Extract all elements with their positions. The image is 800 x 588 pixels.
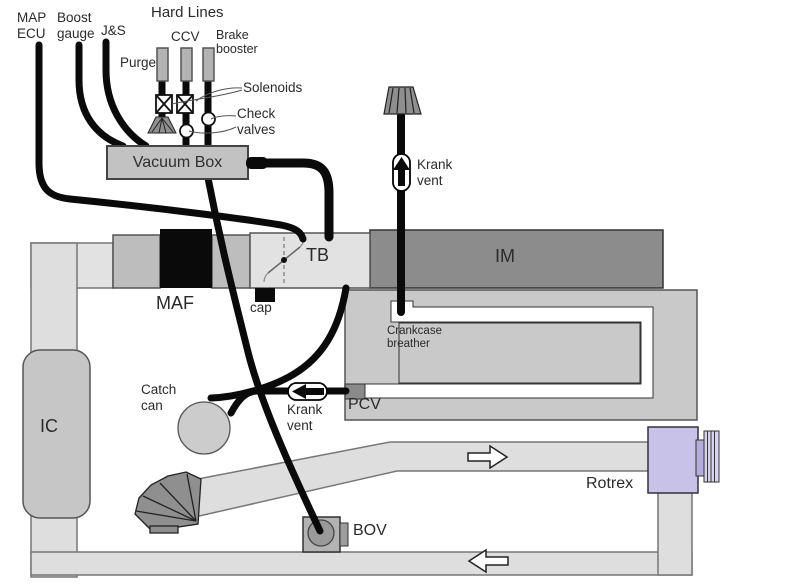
- label-map-ecu: MAP ECU: [17, 10, 46, 41]
- pipe-bottom: [31, 552, 692, 575]
- pipe-diagonal: [177, 442, 650, 519]
- rotrex-pulley: [704, 431, 719, 482]
- pipe-rotrex-down: [658, 482, 692, 575]
- krank-vent-top-valve-icon: [393, 154, 410, 191]
- label-krank-vent-top: Krank vent: [417, 157, 452, 188]
- ccv-solenoid-icon: [177, 95, 193, 113]
- label-krank-vent-bottom: Krank vent: [287, 402, 322, 433]
- label-ic: IC: [40, 416, 58, 437]
- label-tb: TB: [306, 245, 329, 266]
- bov-valve: [303, 517, 348, 552]
- diagram-canvas: [0, 0, 800, 588]
- rotrex-shaft: [696, 440, 704, 476]
- label-solenoids: Solenoids: [243, 80, 302, 96]
- intake-tube-left: [113, 235, 160, 288]
- cone-air-filter: [135, 472, 201, 533]
- label-im: IM: [495, 246, 515, 267]
- label-rotrex: Rotrex: [586, 475, 633, 493]
- krank-vent-bottom-valve-icon: [288, 383, 327, 400]
- hard-line-stubs: [157, 48, 214, 81]
- maf-sensor: [160, 229, 212, 288]
- bov-side-port: [340, 523, 348, 546]
- solenoid-valve-icons: [156, 95, 193, 113]
- label-cap: cap: [250, 300, 272, 316]
- label-boost-gauge: Boost gauge: [57, 10, 95, 41]
- label-crankcase-breather: Crankcase breather: [387, 325, 442, 351]
- hard-line-purge: [157, 48, 168, 81]
- check-valve-brake-icon: [202, 113, 215, 126]
- label-hard-lines: Hard Lines: [151, 4, 224, 21]
- label-brake-booster: Brake booster: [216, 28, 258, 57]
- krank-vent-top-filter-icon: [384, 87, 421, 114]
- hose-tb-to-catchcan: [211, 288, 346, 398]
- hard-line-brake-booster: [203, 48, 214, 81]
- label-bov: BOV: [353, 522, 387, 540]
- label-check-valves: Check valves: [237, 106, 275, 137]
- label-purge: Purge: [120, 55, 156, 71]
- label-ccv: CCV: [171, 29, 200, 45]
- purge-vent-icon: [148, 117, 176, 133]
- label-pcv: PCV: [348, 396, 381, 414]
- label-catch-can: Catch can: [141, 382, 176, 413]
- vacuum-routing-diagram: MAP ECU Boost gauge J&S Hard Lines Purge…: [0, 0, 800, 588]
- hard-line-ccv: [181, 48, 192, 81]
- purge-solenoid-icon: [156, 95, 172, 113]
- catch-can-body: [178, 402, 230, 454]
- rotrex-body: [648, 427, 698, 493]
- vacuum-box-right-port: [246, 157, 268, 169]
- hose-boost-gauge: [79, 45, 123, 146]
- label-vacuum-box: Vacuum Box: [107, 146, 248, 179]
- label-maf: MAF: [156, 293, 194, 314]
- label-js: J&S: [101, 23, 126, 39]
- rotrex-supercharger: [648, 427, 719, 493]
- intake-manifold: [370, 230, 663, 288]
